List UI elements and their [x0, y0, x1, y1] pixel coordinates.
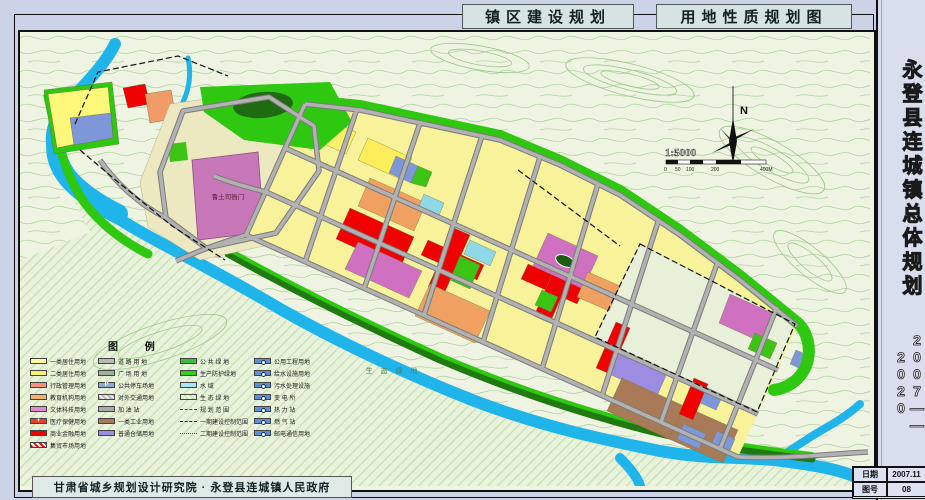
legend-label: 生产防护绿地: [200, 369, 236, 378]
legend-item: 污水处理设施: [254, 379, 310, 391]
legend-swatch: P: [98, 382, 115, 388]
legend-swatch: [180, 382, 197, 388]
legend-title: 图 例: [108, 338, 167, 353]
legend-label: 二期建设控制范围: [200, 429, 248, 438]
legend-item: 生产防护绿地: [180, 367, 248, 379]
date-label: 日期: [853, 467, 887, 482]
legend-label: 普通仓储用地: [118, 429, 154, 438]
legend-swatch: [98, 430, 115, 436]
historic-site-label: 鲁土司衙门: [212, 192, 245, 201]
legend-item: P公共停车场地: [98, 379, 154, 391]
legend-label: 教育机构用地: [50, 393, 86, 402]
sidebar-plan-years: 2007——2020: [878, 308, 925, 458]
page-title-landuse: 用地性质规划图: [656, 4, 852, 29]
legend-label: 一期建设控制范围: [200, 417, 248, 426]
legend-swatch: [30, 394, 47, 400]
legend-label: 一类工业用地: [118, 417, 154, 426]
legend-swatch: [180, 433, 197, 434]
legend-column-1: 一类居住用地二类居住用地行政管理用地教育机构用地文体科技用地+医疗保健用地商业金…: [30, 355, 86, 451]
legend-item: 集贸市场用地: [30, 439, 86, 451]
sheet-number-value: 08: [887, 482, 925, 497]
legend-item: 一类居住用地: [30, 355, 86, 367]
legend-item: 公用工程用地: [254, 355, 310, 367]
scale-text: 1:5000: [665, 147, 697, 159]
legend-item: 教育机构用地: [30, 391, 86, 403]
legend-label: 给水设施用地: [274, 369, 310, 378]
date-value: 2007.11: [887, 467, 925, 482]
legend-label: 加 油 站: [118, 405, 139, 414]
legend-item: 规 划 范 围: [180, 403, 248, 415]
credit-box: 甘肃省城乡规划设计研究院 · 永登县连城镇人民政府: [32, 476, 352, 498]
legend-label: 热 力 站: [274, 405, 295, 414]
legend-label: 燃 气 站: [274, 417, 295, 426]
legend-swatch: [180, 394, 197, 400]
legend-swatch: [98, 358, 115, 364]
sidebar: 永登县连城镇总体规划 2007——2020: [876, 0, 925, 500]
legend-swatch: [30, 430, 47, 436]
legend-label: 一类居住用地: [50, 357, 86, 366]
scale-tick-100: 100: [686, 167, 695, 173]
legend-label: 道 路 用 地: [118, 357, 147, 366]
legend-item: 生 态 绿 地: [180, 391, 248, 403]
legend-item: 一类工业用地: [98, 415, 154, 427]
eco-green-label: 生 态 绿 地: [366, 366, 421, 375]
legend-item: 热 力 站: [254, 403, 310, 415]
legend-swatch: [254, 394, 271, 400]
legend-item: 商业金融用地: [30, 427, 86, 439]
scale-tick-0: 0: [664, 167, 667, 173]
legend-swatch: [254, 382, 271, 388]
legend-label: 规 划 范 围: [200, 405, 229, 414]
legend-column-2: 道 路 用 地广 场 用 地P公共停车场地对外交通用地加 油 站一类工业用地普通…: [98, 355, 154, 439]
legend-swatch: [254, 406, 271, 412]
legend-label: 集贸市场用地: [50, 441, 86, 450]
legend-label: 邮电通信用地: [274, 429, 310, 438]
legend-label: 二类居住用地: [50, 369, 86, 378]
legend-item: 燃 气 站: [254, 415, 310, 427]
legend-label: 商业金融用地: [50, 429, 86, 438]
legend-swatch: [254, 370, 271, 376]
compass-n-label: N: [740, 105, 748, 117]
legend-swatch: +: [30, 418, 47, 424]
legend-item: 一期建设控制范围: [180, 415, 248, 427]
legend-label: 水 域: [200, 381, 214, 390]
legend-item: 广 场 用 地: [98, 367, 154, 379]
legend-swatch: [98, 418, 115, 424]
legend-item: 道 路 用 地: [98, 355, 154, 367]
planning-sheet: { "header": { "title_left": "镇区建设规划", "t…: [0, 0, 925, 500]
legend-swatch: [254, 430, 271, 436]
legend-item: 二类居住用地: [30, 367, 86, 379]
legend-item: 普通仓储用地: [98, 427, 154, 439]
legend-label: 污水处理设施: [274, 381, 310, 390]
legend-item: 文体科技用地: [30, 403, 86, 415]
legend-swatch: [180, 409, 197, 410]
legend-item: 二期建设控制范围: [180, 427, 248, 439]
credit-text: 甘肃省城乡规划设计研究院 · 永登县连城镇人民政府: [54, 479, 331, 495]
legend-column-3: 公 共 绿 地生产防护绿地水 域生 态 绿 地规 划 范 围一期建设控制范围二期…: [180, 355, 248, 439]
legend-swatch: [30, 406, 47, 412]
page-title-right-text: 用地性质规划图: [680, 6, 827, 27]
legend-label: 文体科技用地: [50, 405, 86, 414]
legend-label: 对外交通用地: [118, 393, 154, 402]
drawing-info-table: 日期 2007.11 图号 08: [852, 466, 925, 499]
legend-swatch: [180, 421, 197, 422]
legend-label: 公 共 绿 地: [200, 357, 229, 366]
legend-item: 对外交通用地: [98, 391, 154, 403]
legend-label: 公用工程用地: [274, 357, 310, 366]
legend-item: 邮电通信用地: [254, 427, 310, 439]
legend-swatch: [180, 370, 197, 376]
legend-item: 水 域: [180, 379, 248, 391]
legend-swatch: [30, 382, 47, 388]
legend-item: +医疗保健用地: [30, 415, 86, 427]
legend-swatch: [30, 358, 47, 364]
legend-label: 医疗保健用地: [50, 417, 86, 426]
legend-swatch: [98, 394, 115, 400]
legend-label: 公共停车场地: [118, 381, 154, 390]
legend-item: 给水设施用地: [254, 367, 310, 379]
page-title-left-text: 镇区建设规划: [485, 6, 611, 27]
legend-item: 加 油 站: [98, 403, 154, 415]
legend-label: 变 电 所: [274, 393, 295, 402]
legend-label: 广 场 用 地: [118, 369, 147, 378]
sheet-number-label: 图号: [853, 482, 887, 497]
legend-label: 行政管理用地: [50, 381, 86, 390]
legend-swatch: [180, 358, 197, 364]
legend-item: 公 共 绿 地: [180, 355, 248, 367]
legend-swatch: [30, 370, 47, 376]
sidebar-plan-title: 永登县连城镇总体规划: [878, 50, 925, 308]
scale-tick-50: 50: [675, 167, 681, 173]
legend-column-4: 公用工程用地给水设施用地污水处理设施变 电 所热 力 站燃 气 站邮电通信用地: [254, 355, 310, 439]
legend-swatch: [98, 406, 115, 412]
legend-swatch: [30, 442, 47, 448]
scale-tick-400: 400M: [760, 167, 773, 173]
legend-label: 生 态 绿 地: [200, 393, 229, 402]
legend-item: 行政管理用地: [30, 379, 86, 391]
legend-swatch: [98, 370, 115, 376]
legend-swatch: [254, 358, 271, 364]
legend-swatch: [254, 418, 271, 424]
legend-item: 变 电 所: [254, 391, 310, 403]
page-title-construction: 镇区建设规划: [462, 4, 634, 29]
scale-tick-200: 200: [711, 167, 720, 173]
